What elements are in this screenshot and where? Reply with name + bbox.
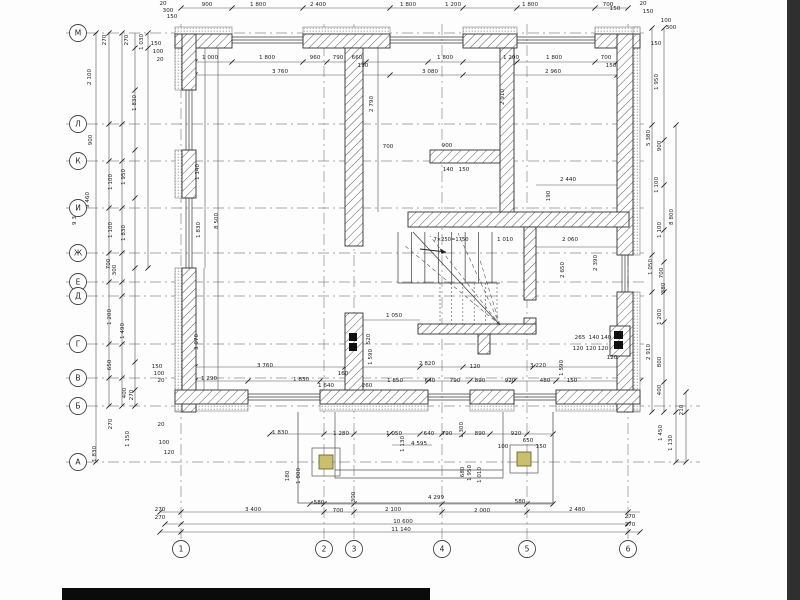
dimension-label: 1 800 bbox=[437, 55, 453, 61]
outer-wall-segment bbox=[320, 390, 428, 404]
dimension-label: 1 010 bbox=[477, 467, 483, 483]
dimension-label: 270 bbox=[129, 389, 135, 400]
insulation-band bbox=[470, 404, 514, 411]
insulation-band bbox=[303, 27, 390, 34]
dimension-label: 520 bbox=[366, 333, 372, 344]
interior-wall-segment bbox=[478, 334, 490, 354]
dimension-label: 2 400 bbox=[310, 2, 326, 8]
dimension-label: 1 490 bbox=[120, 323, 126, 339]
dimension-label: 800 bbox=[657, 356, 663, 367]
dimension-label: 1 030 bbox=[139, 34, 145, 50]
dimension-label: 4 595 bbox=[411, 441, 427, 447]
dimension-label: 150 bbox=[643, 9, 654, 15]
dimension-label: 100 bbox=[498, 444, 509, 450]
axis-label: И bbox=[75, 204, 81, 213]
dimension-label: 3 080 bbox=[422, 69, 438, 75]
dimension-label: 640 bbox=[425, 378, 436, 384]
axis-grid-lines bbox=[66, 24, 700, 543]
dimension-label: 20 bbox=[156, 57, 164, 63]
dimension-label: 4 299 bbox=[428, 495, 444, 501]
dimension-label: 8 800 bbox=[669, 209, 675, 225]
dimension-label: 890 bbox=[475, 431, 486, 437]
interior-wall-segment bbox=[345, 48, 363, 246]
dimension-label: 270 bbox=[108, 418, 114, 429]
dimension-label: 1 800 bbox=[522, 2, 538, 8]
dimension-label: 150 bbox=[459, 167, 470, 173]
dimension-label: 2 100 bbox=[87, 69, 93, 85]
dimension-label: 3 220 bbox=[530, 363, 546, 369]
dimension-label: 20 bbox=[157, 378, 165, 384]
dimension-label: 1 140 bbox=[195, 164, 201, 180]
dimension-label: 400 bbox=[122, 387, 128, 398]
dimension-label: 1 050 bbox=[386, 313, 402, 319]
outer-wall-segment bbox=[182, 150, 196, 198]
interior-wall-segment bbox=[345, 313, 363, 390]
dimension-label: 100 bbox=[154, 371, 165, 377]
dimension-label: 580 bbox=[314, 500, 325, 506]
dimension-label: 1 300 bbox=[459, 422, 465, 438]
dimension-label: 1 100 bbox=[654, 177, 660, 193]
dimension-label: 150 bbox=[606, 63, 617, 69]
dimension-label: 2 000 bbox=[474, 508, 490, 514]
dimension-label: 2 390 bbox=[593, 255, 599, 271]
axis-label: Г bbox=[76, 340, 81, 349]
interior-wall-segment bbox=[524, 227, 536, 300]
stair-winder-line bbox=[458, 233, 500, 325]
dimension-label: 20 bbox=[157, 422, 165, 428]
axis-label: Б bbox=[75, 402, 80, 411]
dimension-label: 1 800 bbox=[400, 2, 416, 8]
dimension-label: 1 280 bbox=[333, 431, 349, 437]
dimension-label: 190 bbox=[546, 190, 552, 201]
dimension-label: 11 140 bbox=[391, 527, 411, 533]
dimension-label: 900 bbox=[657, 140, 663, 151]
dimension-label: 650 bbox=[107, 359, 113, 370]
dimension-label: 120 bbox=[164, 450, 175, 456]
flue-duct bbox=[614, 331, 623, 339]
dimension-label: 150 bbox=[567, 378, 578, 384]
outer-wall-segment bbox=[175, 390, 248, 404]
dimension-label: 1 290 bbox=[201, 376, 217, 382]
dimension-label: 2 820 bbox=[419, 361, 435, 367]
dimension-label: 3 400 bbox=[245, 507, 261, 513]
dimension-label: 120 bbox=[470, 364, 481, 370]
insulation-band bbox=[633, 27, 640, 255]
dimension-label: 140 bbox=[601, 335, 612, 341]
dimension-label: 960 bbox=[310, 55, 321, 61]
dimension-label: 660 bbox=[352, 55, 363, 61]
dimension-label: 300 bbox=[666, 25, 677, 31]
dimension-label: 790 bbox=[450, 378, 461, 384]
dimension-label: 150 bbox=[610, 6, 621, 12]
axis-label: Л bbox=[75, 120, 81, 129]
dimension-label: 650 bbox=[523, 438, 534, 444]
axis-label: Е bbox=[76, 278, 81, 287]
dimension-label: 265 bbox=[575, 335, 586, 341]
dimension-label: 160 bbox=[338, 371, 349, 377]
dimension-label: 3 760 bbox=[257, 363, 273, 369]
dimension-label: 100 bbox=[661, 18, 672, 24]
dimension-label: 190 bbox=[358, 63, 369, 69]
axis-label: 5 bbox=[525, 545, 530, 554]
dimension-label: 920 bbox=[505, 378, 516, 384]
dimension-label: 5 380 bbox=[646, 130, 652, 146]
dimension-label: 8 500 bbox=[214, 213, 220, 229]
dimension-label: 790 bbox=[442, 431, 453, 437]
dimension-label: 150 bbox=[651, 41, 662, 47]
dimension-label: 2 960 bbox=[545, 69, 561, 75]
dimension-label: 180 bbox=[285, 470, 291, 481]
dimension-label: 260 bbox=[362, 383, 373, 389]
dimension-label: 150 bbox=[151, 41, 162, 47]
dimension-label: 1 800 bbox=[546, 55, 562, 61]
dimension-label: 700 bbox=[601, 55, 612, 61]
dimension-label: 1 950 bbox=[467, 465, 473, 481]
floor-plan-drawing: 7×250=1750 9001 8002 4001 8001 2001 8007… bbox=[0, 0, 800, 600]
dimension-label: 1 200 bbox=[445, 2, 461, 8]
dimension-label: 1 830 bbox=[121, 225, 127, 241]
dimension-label: 270 bbox=[102, 34, 108, 45]
axis-label: М bbox=[75, 29, 81, 38]
dimension-label: 700 bbox=[659, 267, 665, 278]
dimension-label: 1 830 bbox=[92, 446, 98, 462]
dimension-label: 270 bbox=[625, 522, 636, 528]
dimension-label: 20 bbox=[639, 1, 647, 7]
axis-label: 4 bbox=[440, 545, 445, 554]
interior-wall-segment bbox=[430, 150, 500, 163]
dimension-labels: 9001 8002 4001 8001 2001 800700203001501… bbox=[72, 1, 685, 533]
dimension-label: 2 650 bbox=[560, 262, 566, 278]
insulation-band bbox=[320, 404, 428, 411]
dimension-label: 100 bbox=[153, 49, 164, 55]
dimension-label: 1 830 bbox=[196, 222, 202, 238]
outer-wall-segment bbox=[463, 34, 517, 48]
dimension-label: 2 910 bbox=[500, 89, 506, 105]
dimension-label: 900 bbox=[442, 143, 453, 149]
dimension-label: 1 150 bbox=[125, 431, 131, 447]
outer-wall-segment bbox=[556, 390, 640, 404]
dimension-label: 1 830 bbox=[132, 95, 138, 111]
dimension-label: 120 bbox=[598, 346, 609, 352]
dimension-label: 400 bbox=[657, 384, 663, 395]
dimension-label: 150 bbox=[152, 364, 163, 370]
porch bbox=[298, 412, 553, 503]
dimension-label: 1 800 bbox=[250, 2, 266, 8]
dimension-label: 480 bbox=[540, 378, 551, 384]
dimension-label: 1 100 bbox=[108, 222, 114, 238]
dimension-label: 1 100 bbox=[657, 222, 663, 238]
dimension-label: 920 bbox=[511, 431, 522, 437]
dimension-label: 1 830 bbox=[293, 377, 309, 383]
flue-duct bbox=[614, 341, 623, 349]
page: 7×250=1750 9001 8002 4001 8001 2001 8007… bbox=[0, 0, 800, 600]
dimension-label: 1 590 bbox=[368, 349, 374, 365]
dimension-label: 1 050 bbox=[648, 259, 654, 275]
outer-wall-segment bbox=[470, 390, 514, 404]
stair-up-line bbox=[413, 232, 500, 325]
dimension-label: 1 830 bbox=[272, 430, 288, 436]
insulation-band bbox=[175, 27, 232, 34]
dimension-label: 150 bbox=[167, 14, 178, 20]
walls bbox=[175, 27, 640, 412]
dimension-label: 2 910 bbox=[646, 344, 652, 360]
dimension-label: 120 bbox=[573, 346, 584, 352]
dimension-label: 3 070 bbox=[194, 334, 200, 350]
dimension-label: 1 800 bbox=[259, 55, 275, 61]
axis-label: 6 bbox=[626, 545, 631, 554]
dimension-label: 700 bbox=[333, 508, 344, 514]
outer-wall-segment bbox=[182, 34, 196, 90]
dimension-label: 120 bbox=[586, 346, 597, 352]
dimension-label: 640 bbox=[424, 431, 435, 437]
interior-wall-segment bbox=[408, 212, 629, 227]
dimension-label: 380 bbox=[661, 282, 667, 293]
flue-duct bbox=[349, 343, 357, 351]
dimension-label: 1 640 bbox=[318, 383, 334, 389]
dimension-label: 900 bbox=[88, 134, 94, 145]
interior-wall-segment bbox=[500, 48, 514, 215]
dimension-label: 150 bbox=[536, 444, 547, 450]
dimension-label: 2 790 bbox=[369, 96, 375, 112]
stair-label: 7×250=1750 bbox=[433, 237, 468, 243]
axis-label: Ж bbox=[74, 249, 82, 258]
dimension-label: 300 bbox=[112, 264, 118, 275]
porch-column bbox=[517, 452, 531, 466]
dimension-label: 1 850 bbox=[387, 378, 403, 384]
dimension-label: 2 480 bbox=[569, 507, 585, 513]
dimension-label: 10 600 bbox=[393, 519, 413, 525]
axis-label: В bbox=[75, 374, 80, 383]
staircase: 7×250=1750 bbox=[398, 232, 500, 325]
axis-label: К bbox=[75, 157, 81, 166]
dimension-label: 1 000 bbox=[202, 55, 218, 61]
page-edge-strip bbox=[787, 0, 800, 600]
dimension-label: 700 bbox=[383, 144, 394, 150]
page-bottom-bar bbox=[62, 588, 430, 600]
dimension-label: 1 200 bbox=[107, 309, 113, 325]
dimension-label: 300 bbox=[351, 491, 357, 502]
dimension-label: 1 800 bbox=[296, 468, 302, 484]
porch-outline bbox=[298, 412, 553, 503]
dimension-label: 1 950 bbox=[121, 169, 127, 185]
dimension-label: 1 130 bbox=[400, 436, 406, 452]
dimension-label: 1 010 bbox=[497, 237, 513, 243]
axis-label: 2 bbox=[322, 545, 327, 554]
dimension-label: 900 bbox=[202, 2, 213, 8]
dimension-label: 790 bbox=[333, 55, 344, 61]
dimension-label: 140 bbox=[589, 335, 600, 341]
dimension-label: 1 590 bbox=[559, 360, 565, 376]
dimension-label: 1 200 bbox=[503, 55, 519, 61]
dimension-label: 2 440 bbox=[560, 177, 576, 183]
dimension-label: 270 bbox=[155, 507, 166, 513]
interior-wall-segment bbox=[418, 324, 536, 334]
dimension-label: 20 bbox=[159, 1, 167, 7]
dimension-label: 2 060 bbox=[562, 237, 578, 243]
axis-label: 3 bbox=[352, 545, 357, 554]
outer-wall-segment bbox=[303, 34, 390, 48]
dimension-label: 2 100 bbox=[385, 507, 401, 513]
axis-label: 1 bbox=[179, 545, 184, 554]
insulation-band bbox=[463, 27, 517, 34]
dimension-label: 1 200 bbox=[657, 309, 663, 325]
dimension-label: 140 bbox=[443, 167, 454, 173]
dimension-label: 120 bbox=[607, 355, 618, 361]
dimension-label: 100 bbox=[159, 440, 170, 446]
axis-label: А bbox=[75, 458, 81, 467]
dimension-label: 1 130 bbox=[668, 435, 674, 451]
dimension-label: 890 bbox=[475, 378, 486, 384]
flue-duct bbox=[349, 333, 357, 341]
dimension-label: 1 450 bbox=[658, 425, 664, 441]
dimension-label: 270 bbox=[625, 514, 636, 520]
dimension-label: 270 bbox=[155, 515, 166, 521]
dimension-label: 210 bbox=[679, 404, 685, 415]
dimension-label: 680 bbox=[460, 466, 466, 477]
dimension-label: 270 bbox=[124, 34, 130, 45]
axis-label: Д bbox=[75, 292, 81, 301]
dimension-label: 580 bbox=[515, 499, 526, 505]
dimension-label: 1 950 bbox=[654, 74, 660, 90]
dimension-label: 3 760 bbox=[272, 69, 288, 75]
porch-column bbox=[319, 455, 333, 469]
dimension-label: 1 100 bbox=[108, 174, 114, 190]
insulation-band bbox=[175, 150, 182, 198]
